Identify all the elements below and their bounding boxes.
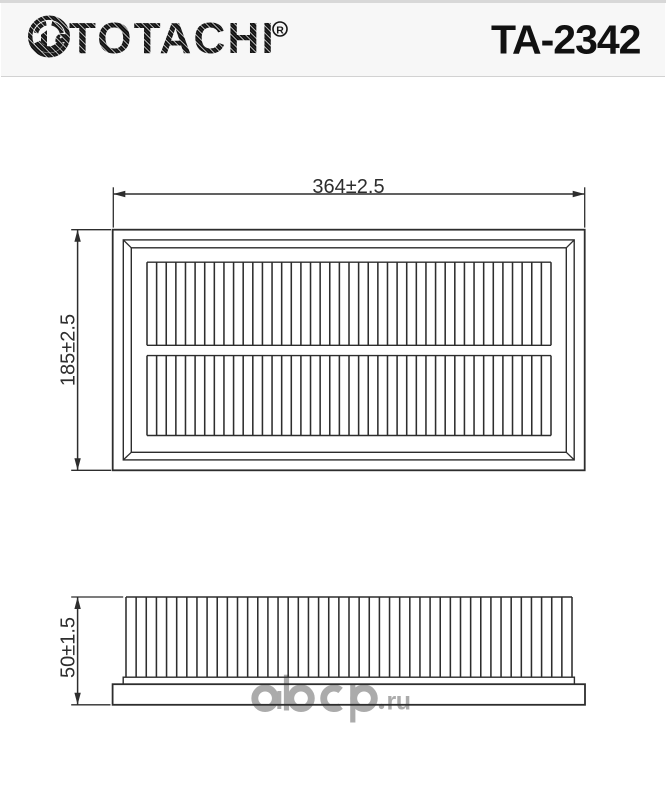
svg-text:ru: ru bbox=[387, 687, 411, 715]
svg-text:R: R bbox=[276, 25, 284, 37]
svg-text:364±2.5: 364±2.5 bbox=[312, 176, 384, 198]
svg-text:50±1.5: 50±1.5 bbox=[58, 617, 80, 678]
svg-text:TA-2342: TA-2342 bbox=[491, 16, 641, 62]
svg-text:TOTACHI: TOTACHI bbox=[69, 14, 276, 63]
svg-text:185±2.5: 185±2.5 bbox=[58, 314, 80, 386]
